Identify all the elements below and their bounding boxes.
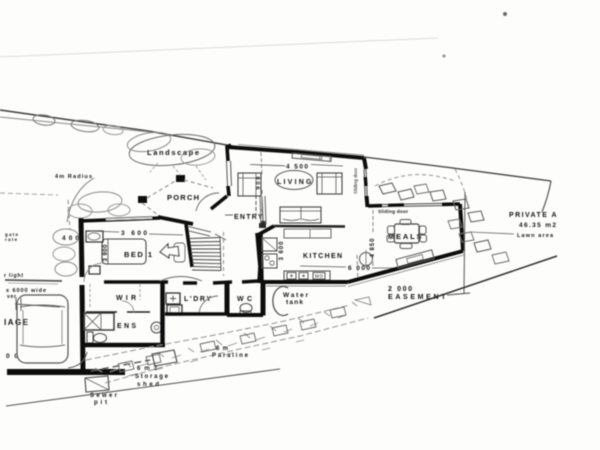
svg-text:3 600: 3 600	[279, 241, 285, 261]
svg-text:KITCHEN: KITCHEN	[303, 253, 343, 260]
svg-text:tank: tank	[286, 299, 303, 306]
svg-text:ver: ver	[7, 294, 16, 300]
svg-text:pit: pit	[94, 400, 107, 406]
svg-text:ENS: ENS	[117, 323, 136, 330]
svg-text:3 900: 3 900	[103, 244, 109, 262]
svg-text:EASEMENT: EASEMENT	[388, 294, 446, 301]
svg-text:PRIVATE A: PRIVATE A	[509, 212, 557, 219]
svg-text:4m Radius: 4m Radius	[55, 174, 92, 180]
svg-text:WIR: WIR	[116, 295, 136, 302]
svg-text:900: 900	[256, 177, 262, 190]
svg-text:6m3: 6m3	[137, 366, 158, 372]
svg-text:IAGE: IAGE	[4, 318, 29, 327]
svg-text:Sliding door: Sliding door	[378, 209, 408, 215]
svg-text:4 850: 4 850	[370, 238, 376, 258]
svg-text:MEALS: MEALS	[388, 232, 422, 241]
svg-text:BED 1: BED 1	[124, 250, 152, 259]
svg-text:MO: MO	[315, 274, 323, 279]
svg-text:Sliding door: Sliding door	[353, 168, 358, 195]
svg-text:ENTRY: ENTRY	[234, 214, 263, 221]
svg-text:Water: Water	[283, 292, 308, 299]
svg-text:PORCH: PORCH	[167, 193, 200, 202]
svg-text:6m: 6m	[216, 346, 228, 352]
svg-text:2 000: 2 000	[388, 286, 412, 293]
svg-text:Lawn area: Lawn area	[517, 233, 554, 239]
svg-text:6 000: 6 000	[348, 265, 370, 272]
svg-text:4 500: 4 500	[286, 164, 308, 171]
svg-text:r light: r light	[4, 273, 23, 279]
svg-text:46.35 m2: 46.35 m2	[519, 222, 556, 229]
svg-text:Landscape: Landscape	[147, 148, 199, 157]
